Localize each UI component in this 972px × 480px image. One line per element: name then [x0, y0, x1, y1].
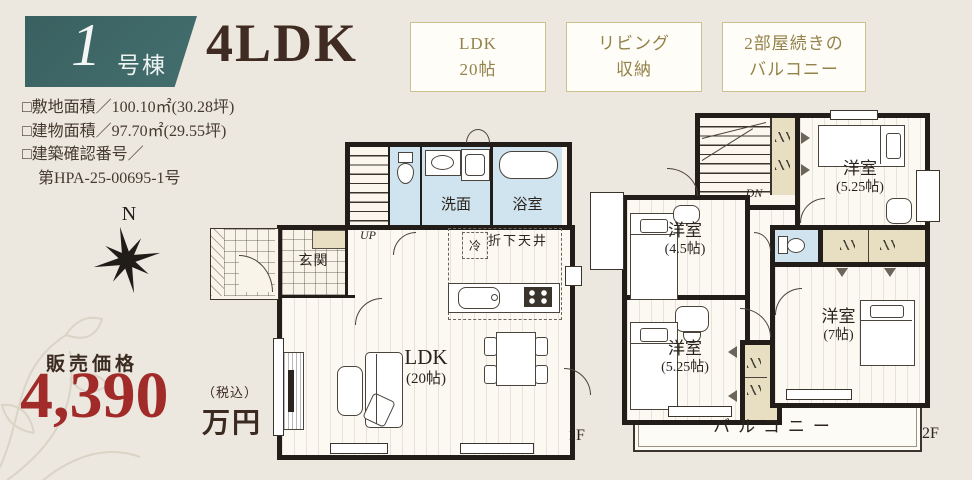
spec-site-area: □敷地面積／100.10㎡(30.28坪): [22, 96, 234, 120]
bedroom-left-label: 洋室 (4.5帖): [640, 220, 730, 259]
toilet-icon: [398, 152, 413, 163]
window: [330, 443, 388, 454]
closet-mark: [880, 240, 895, 250]
sink-icon: [431, 155, 454, 170]
ldk-size: (20帖): [384, 370, 468, 389]
casement-window: [916, 170, 940, 222]
entrance-porch: [210, 228, 279, 300]
closet-mark: [840, 240, 855, 250]
window: [786, 389, 852, 400]
1f-staircase: [350, 147, 390, 225]
toilet-icon: [787, 238, 805, 253]
flyer-page: 1 号棟 4LDK LDK 20帖 リビング 収納 2部屋続きの バルコニー □…: [0, 0, 972, 480]
closet-door-mark: [801, 132, 810, 144]
closet-mark: [747, 385, 761, 395]
wall: [282, 295, 355, 298]
price-tax-note: （税込）: [202, 382, 262, 401]
bathtub-icon: [499, 151, 558, 179]
backdoor-arc: [466, 129, 490, 143]
feature-tag-line: バルコニー: [723, 57, 865, 83]
dining-chair: [535, 365, 548, 384]
closet-divider: [745, 377, 767, 378]
unit-badge-suffix: 号棟: [117, 46, 167, 80]
side-door-step: [565, 266, 582, 286]
floorplan-1f: 洗面 浴室 玄関 UP 冷 折下天井 LDK (20帖: [208, 138, 606, 456]
bedroom-right-label: 洋室 (7帖): [796, 306, 881, 345]
compass-rose-icon: [87, 220, 168, 301]
floorplan-2f: DN 洋室 (5.25帖) 洋室 (4.5帖): [618, 110, 972, 460]
washing-machine-icon: [465, 154, 485, 176]
floor2-label: 2F: [922, 424, 956, 444]
closet-door-mark: [884, 268, 896, 277]
room-name: 洋室: [796, 306, 881, 327]
feature-tag-balcony: 2部屋続きの バルコニー: [722, 22, 866, 92]
room-size: (4.5帖): [640, 241, 730, 259]
desk: [675, 306, 709, 332]
window: [830, 110, 878, 120]
window: [460, 443, 534, 454]
shoe-cabinet: [312, 230, 347, 249]
feature-tag-line: リビング: [567, 31, 701, 57]
feature-tag-line: 20帖: [411, 57, 545, 83]
dropped-ceiling-label: 折下天井: [476, 233, 560, 249]
bedroom-bottomleft-label: 洋室 (5.25帖): [640, 338, 730, 377]
feature-tag-ldk: LDK 20帖: [410, 22, 546, 92]
bathroom-label: 浴室: [493, 196, 562, 215]
closet-door-mark: [728, 390, 737, 402]
entrance-label: 玄関: [282, 253, 345, 271]
closet-mark: [775, 132, 790, 142]
window: [273, 338, 284, 436]
price-amount: 4,390: [20, 358, 169, 434]
price-unit-group: （税込） 万円: [202, 382, 262, 441]
feature-tag-line: LDK: [411, 31, 545, 57]
spec-building-area: □建物面積／97.70㎡(29.55坪): [22, 120, 234, 144]
ldk-label: LDK (20帖): [384, 344, 468, 389]
unit-badge-number: 1: [71, 12, 101, 78]
sofa-back-line: [376, 354, 377, 424]
closet-divider: [868, 230, 869, 262]
spec-confirmation-number-label: □建築確認番号／: [22, 143, 234, 167]
floor1-label: 1F: [568, 426, 602, 446]
unit-badge: 1 号棟: [25, 16, 197, 87]
closet-door-mark: [801, 164, 810, 176]
price-unit: 万円: [202, 401, 262, 441]
feature-tag-living-storage: リビング 収納: [566, 22, 702, 92]
feature-tag-line: 収納: [567, 57, 701, 83]
compass: N: [93, 203, 165, 303]
bedroom-topright-label: 洋室 (5.25帖): [810, 158, 910, 197]
compass-north-label: N: [93, 203, 165, 226]
ldk-name: LDK: [384, 344, 468, 370]
coffee-table: [337, 366, 363, 416]
wall: [345, 230, 348, 298]
nightstand: [886, 198, 912, 224]
spec-confirmation-number: 第HPA-25-00695-1号: [22, 167, 234, 191]
tv-icon: [288, 370, 294, 412]
room-size: (5.25帖): [640, 359, 730, 377]
room-size: (5.25帖): [810, 179, 910, 197]
ldk-exterior-door-arc: [564, 368, 591, 395]
closet-mark: [747, 358, 761, 368]
stairs-up-label: UP: [352, 228, 384, 243]
dining-table-icon: [496, 332, 536, 386]
stove-icon: [524, 287, 552, 307]
washroom-label: 洗面: [422, 196, 490, 215]
bed-pillow: [886, 133, 901, 159]
balcony-label: バルコニー: [633, 416, 918, 437]
closet-door-mark: [836, 268, 848, 277]
room-name: 洋室: [640, 220, 730, 241]
room-name: 洋室: [810, 158, 910, 179]
room-size: (7帖): [796, 327, 881, 345]
2f-tall-closet: [772, 118, 795, 195]
plan-type-title: 4LDK: [206, 14, 358, 73]
porch-side-canopy: [211, 229, 225, 296]
casement-window: [590, 192, 624, 270]
dining-chair: [535, 337, 548, 356]
faucet-icon: [491, 294, 498, 301]
bedroom-door-arc: [667, 168, 698, 196]
property-specs: □敷地面積／100.10㎡(30.28坪) □建物面積／97.70㎡(29.55…: [22, 96, 234, 190]
stairs-down-label: DN: [736, 186, 772, 201]
room-name: 洋室: [640, 338, 730, 359]
feature-tag-line: 2部屋続きの: [723, 31, 865, 57]
closet-mark: [775, 160, 790, 170]
wall: [388, 147, 390, 225]
